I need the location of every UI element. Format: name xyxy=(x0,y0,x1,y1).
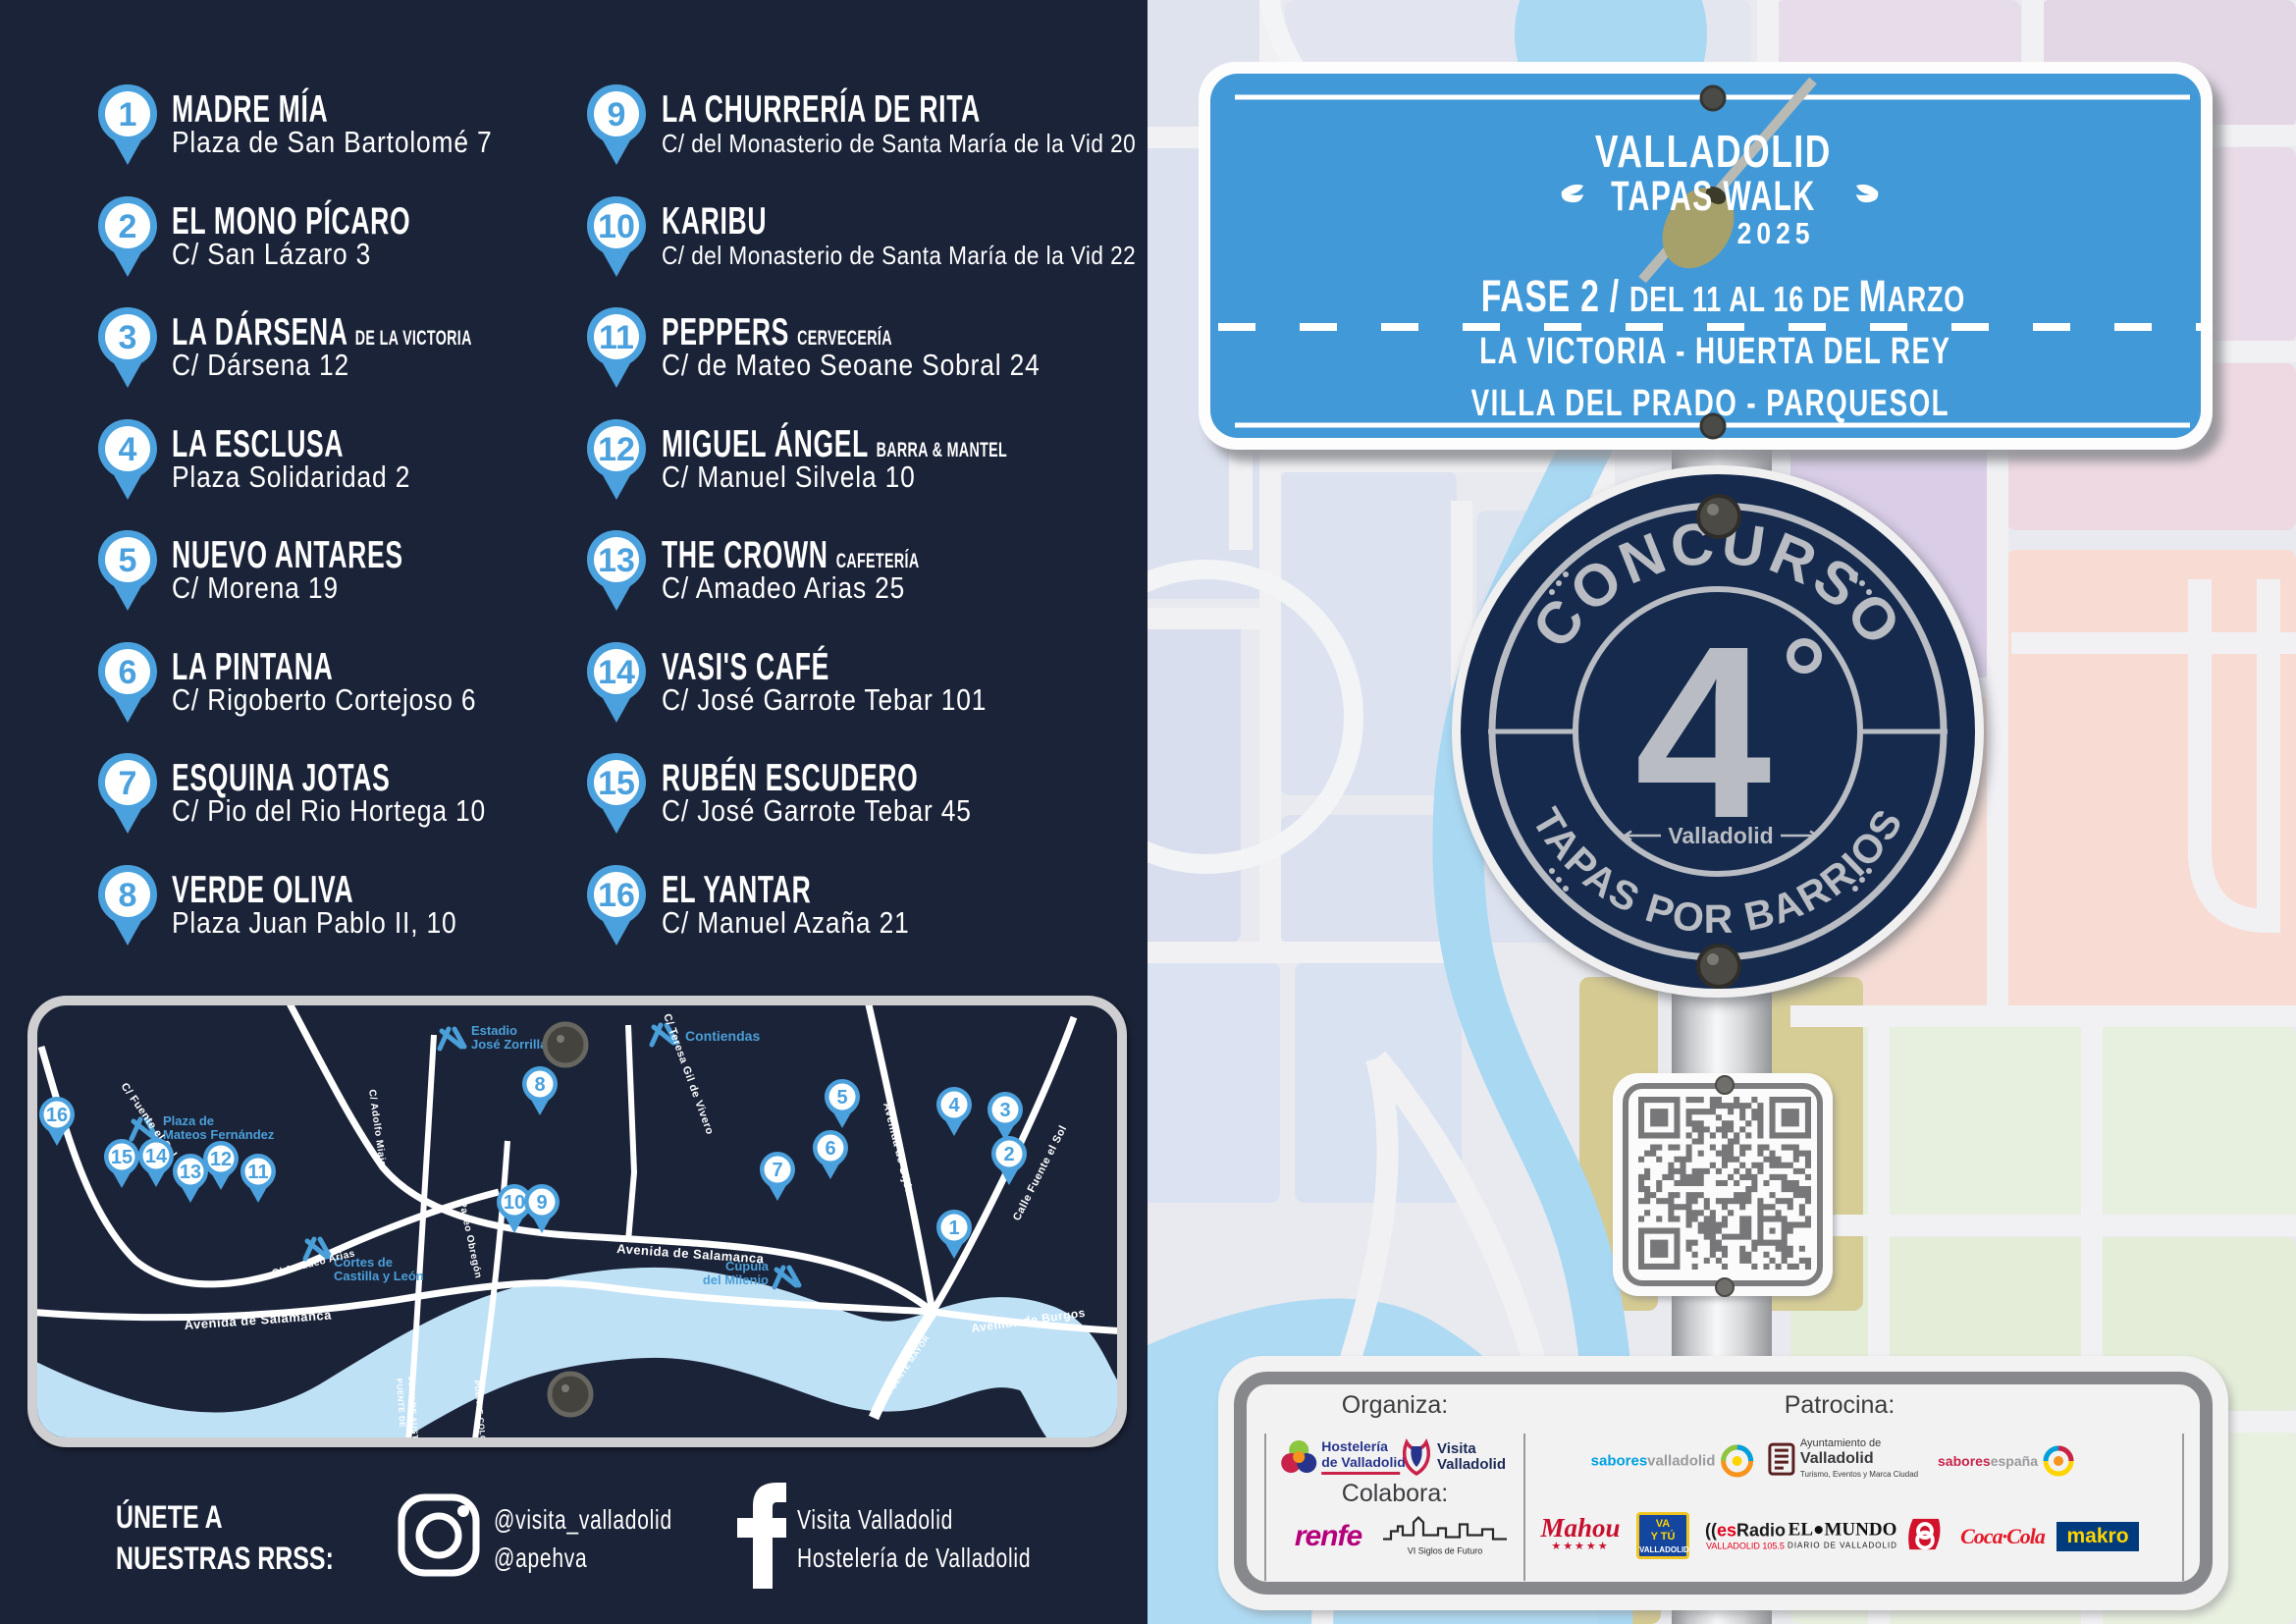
svg-text:Estadio: Estadio xyxy=(471,1023,517,1038)
svg-text:5: 5 xyxy=(119,542,137,579)
svg-text:Avenida de Gijón: Avenida de Gijón xyxy=(881,1102,915,1197)
svg-text:6: 6 xyxy=(119,654,137,691)
svg-text:9: 9 xyxy=(608,96,626,134)
svg-text:8: 8 xyxy=(534,1074,545,1096)
svg-text:15: 15 xyxy=(111,1147,133,1168)
svg-text:11: 11 xyxy=(599,319,634,356)
svg-text:15: 15 xyxy=(598,765,635,802)
svg-text:2: 2 xyxy=(1003,1144,1014,1165)
svg-text:C/ Adolfo Miaja: C/ Adolfo Miaja xyxy=(366,1089,388,1167)
svg-text:16: 16 xyxy=(46,1105,68,1126)
svg-text:Paseo Obregón: Paseo Obregón xyxy=(456,1200,483,1279)
svg-text:del Milenio: del Milenio xyxy=(703,1272,769,1287)
svg-text:8: 8 xyxy=(119,877,137,914)
svg-text:13: 13 xyxy=(180,1162,201,1183)
svg-text:4: 4 xyxy=(948,1095,960,1116)
svg-text:6: 6 xyxy=(825,1138,835,1160)
svg-text:9: 9 xyxy=(536,1192,547,1214)
svg-text:14: 14 xyxy=(598,654,635,691)
svg-text:3: 3 xyxy=(999,1100,1010,1121)
svg-text:7: 7 xyxy=(119,765,137,802)
svg-text:1: 1 xyxy=(948,1218,959,1239)
svg-text:3: 3 xyxy=(119,319,137,356)
svg-text:Contiendas: Contiendas xyxy=(685,1028,760,1044)
svg-text:10: 10 xyxy=(598,208,635,245)
svg-text:José Zorrilla: José Zorrilla xyxy=(471,1037,548,1052)
svg-text:2: 2 xyxy=(119,208,137,245)
svg-text:Valladolid: Valladolid xyxy=(1668,823,1773,848)
svg-text:11: 11 xyxy=(247,1162,268,1183)
svg-text:13: 13 xyxy=(598,542,635,579)
svg-text:7: 7 xyxy=(772,1160,782,1181)
svg-text:12: 12 xyxy=(598,431,635,468)
svg-text:Mateos Fernández: Mateos Fernández xyxy=(163,1127,275,1142)
svg-text:16: 16 xyxy=(598,877,635,914)
svg-text:4: 4 xyxy=(119,431,137,468)
svg-text:12: 12 xyxy=(210,1149,232,1170)
svg-text:Plaza de: Plaza de xyxy=(163,1113,214,1128)
svg-text:5: 5 xyxy=(836,1087,847,1109)
svg-text:Castilla y León: Castilla y León xyxy=(334,1269,424,1283)
svg-text:10: 10 xyxy=(504,1192,525,1214)
svg-text:14: 14 xyxy=(145,1146,168,1167)
svg-text:1: 1 xyxy=(119,96,137,134)
